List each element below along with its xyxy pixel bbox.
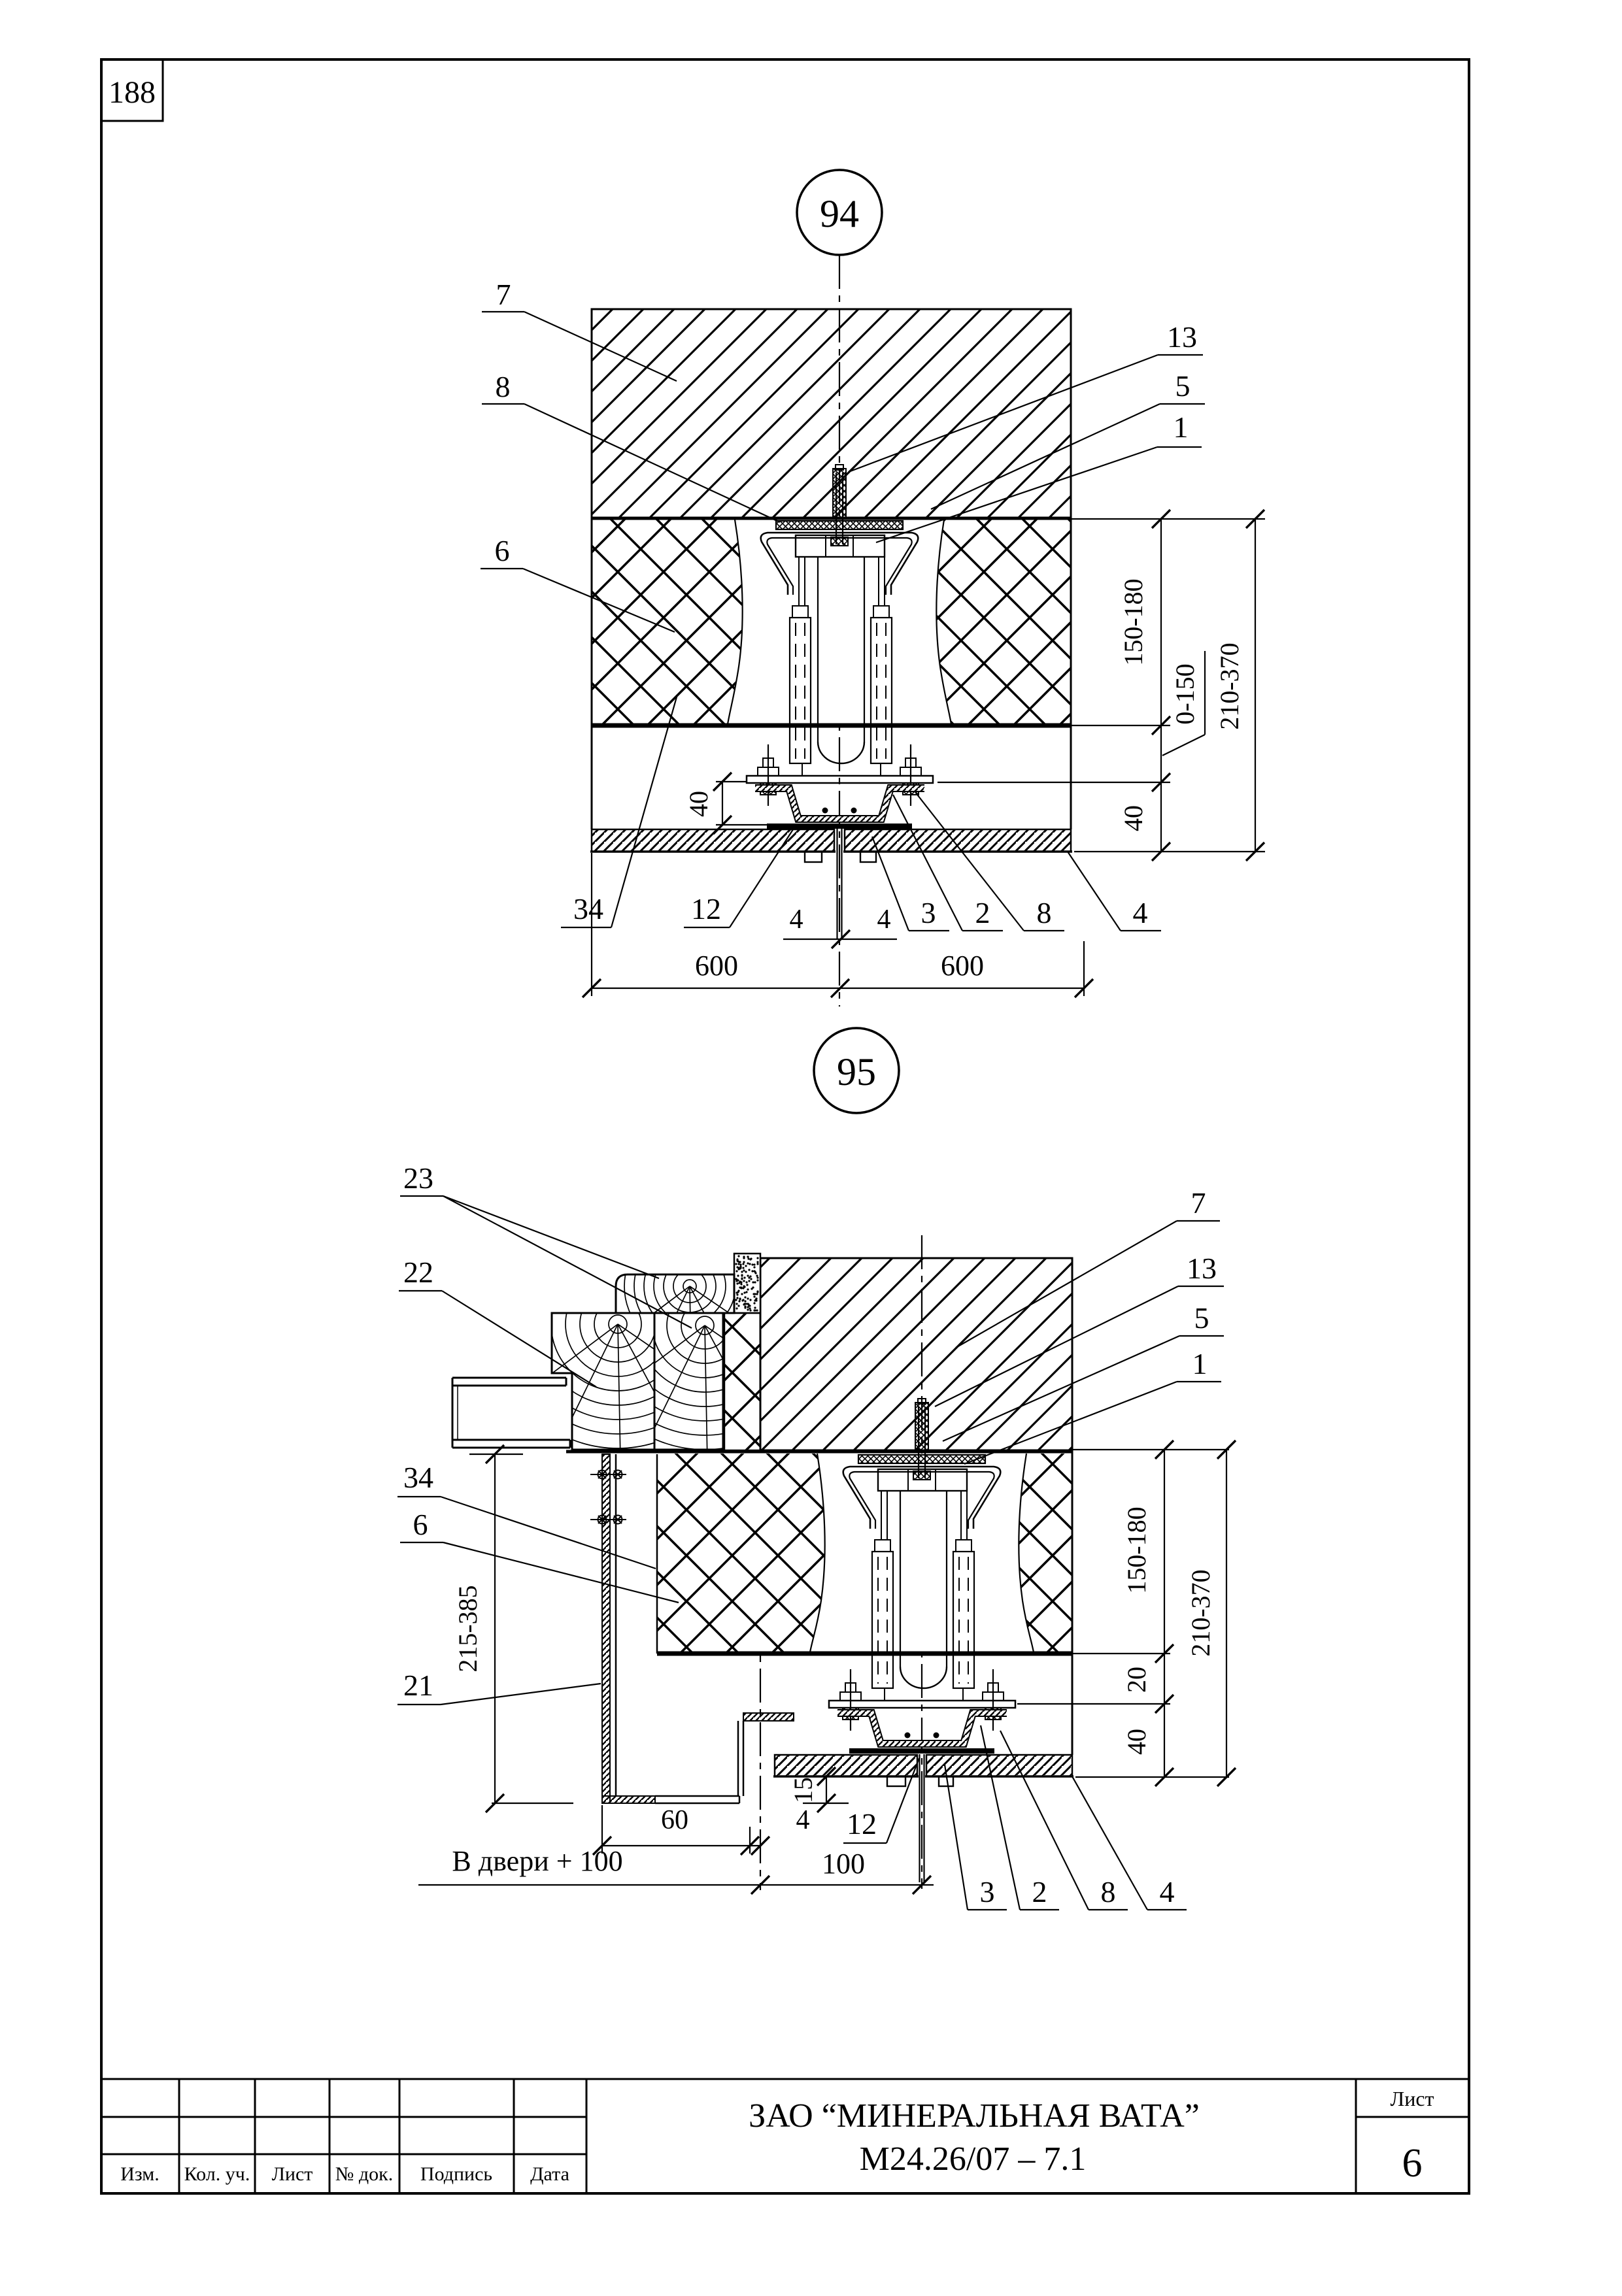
- svg-text:150-180: 150-180: [1119, 578, 1148, 665]
- svg-text:3: 3: [980, 1875, 995, 1908]
- svg-text:100: 100: [822, 1848, 865, 1880]
- svg-text:60: 60: [661, 1805, 688, 1835]
- svg-text:23: 23: [403, 1161, 433, 1195]
- svg-text:В двери + 100: В двери + 100: [452, 1845, 622, 1877]
- svg-text:1: 1: [1174, 410, 1189, 444]
- svg-text:210-370: 210-370: [1186, 1569, 1215, 1656]
- svg-text:12: 12: [847, 1807, 877, 1840]
- svg-text:8: 8: [1037, 896, 1052, 929]
- svg-text:40: 40: [1122, 1729, 1151, 1755]
- svg-text:4: 4: [1160, 1875, 1175, 1908]
- svg-text:Дата: Дата: [530, 2163, 569, 2185]
- svg-text:13: 13: [1187, 1252, 1217, 1285]
- svg-text:Изм.: Изм.: [120, 2163, 160, 2185]
- svg-text:6: 6: [1402, 2141, 1423, 2186]
- svg-text:34: 34: [573, 892, 603, 925]
- svg-text:6: 6: [495, 534, 510, 567]
- svg-text:4: 4: [1133, 896, 1148, 929]
- svg-text:12: 12: [691, 892, 721, 925]
- svg-text:20: 20: [1122, 1667, 1151, 1693]
- svg-text:215-385: 215-385: [453, 1585, 482, 1672]
- svg-text:188: 188: [109, 75, 156, 110]
- svg-text:2: 2: [1032, 1875, 1047, 1908]
- svg-text:7: 7: [1191, 1186, 1206, 1220]
- svg-text:6: 6: [413, 1508, 428, 1541]
- svg-text:3: 3: [921, 896, 936, 929]
- svg-text:1: 1: [1192, 1347, 1208, 1380]
- svg-text:4: 4: [796, 1805, 810, 1835]
- svg-text:2: 2: [975, 896, 990, 929]
- svg-text:15: 15: [788, 1777, 818, 1803]
- svg-text:Кол. уч.: Кол. уч.: [184, 2163, 250, 2185]
- svg-text:Подпись: Подпись: [420, 2163, 492, 2185]
- svg-text:600: 600: [695, 950, 738, 982]
- svg-text:94: 94: [820, 192, 859, 235]
- svg-text:210-370: 210-370: [1215, 642, 1244, 729]
- svg-text:0-150: 0-150: [1170, 663, 1200, 724]
- svg-text:34: 34: [403, 1461, 433, 1494]
- svg-text:40: 40: [684, 791, 713, 817]
- svg-text:21: 21: [403, 1669, 433, 1702]
- svg-text:150-180: 150-180: [1122, 1506, 1151, 1593]
- svg-text:Лист: Лист: [1390, 2087, 1434, 2110]
- svg-text:4: 4: [877, 905, 891, 935]
- svg-text:22: 22: [403, 1256, 433, 1289]
- svg-text:13: 13: [1167, 320, 1197, 354]
- svg-text:7: 7: [496, 278, 511, 311]
- svg-text:95: 95: [837, 1050, 876, 1093]
- svg-text:5: 5: [1194, 1301, 1209, 1335]
- svg-text:5: 5: [1175, 369, 1191, 403]
- svg-text:ЗАО “МИНЕРАЛЬНАЯ ВАТА”: ЗАО “МИНЕРАЛЬНАЯ ВАТА”: [749, 2097, 1200, 2135]
- svg-text:Лист: Лист: [272, 2163, 313, 2185]
- svg-text:40: 40: [1119, 805, 1148, 831]
- svg-text:4: 4: [790, 905, 803, 935]
- svg-text:8: 8: [1101, 1875, 1116, 1908]
- svg-text:№ док.: № док.: [335, 2163, 393, 2185]
- svg-text:600: 600: [941, 950, 984, 982]
- svg-text:М24.26/07 – 7.1: М24.26/07 – 7.1: [860, 2140, 1087, 2178]
- svg-text:8: 8: [496, 370, 511, 403]
